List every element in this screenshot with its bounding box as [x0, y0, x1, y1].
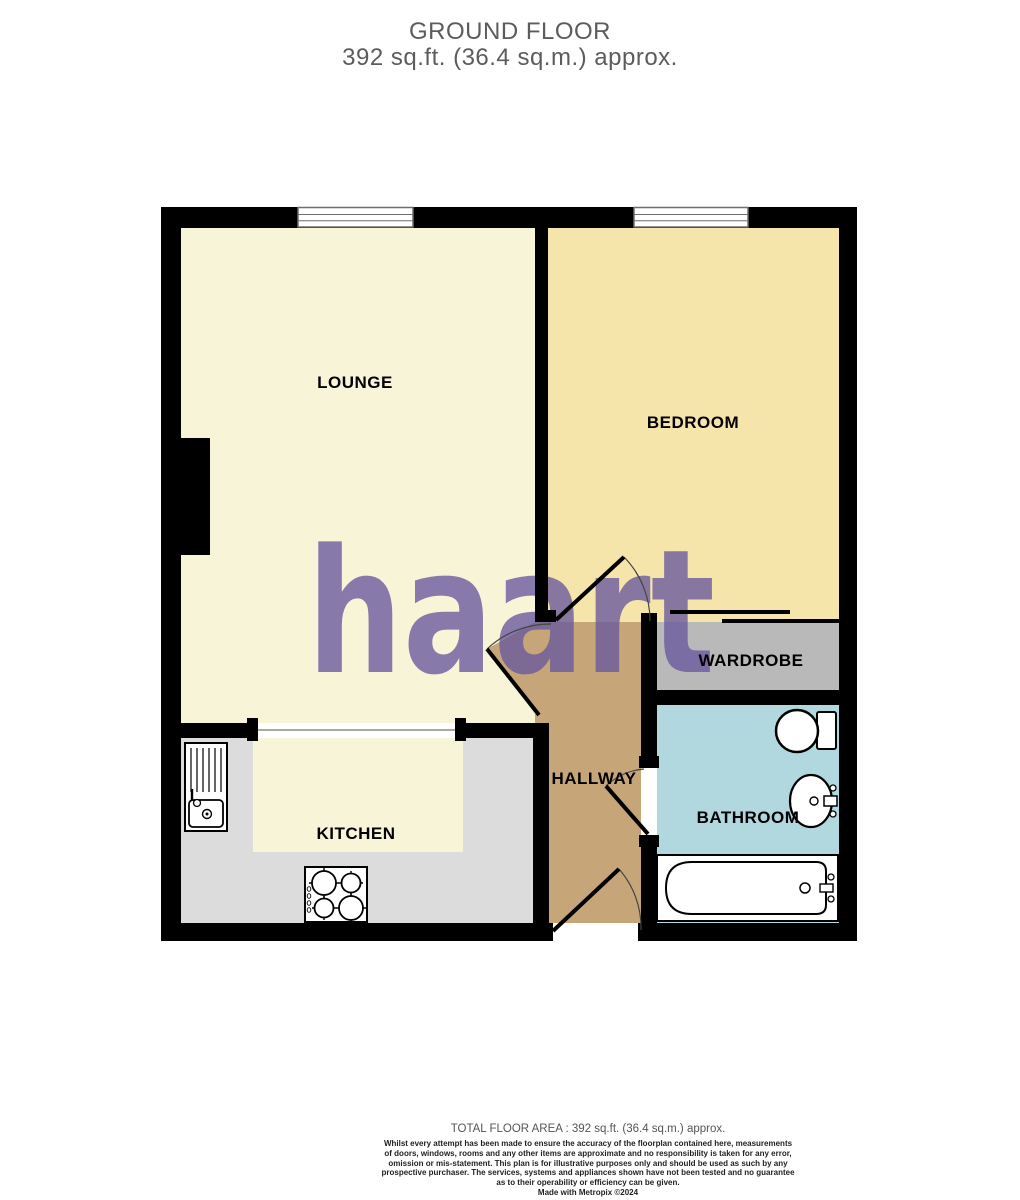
- bedroom-label: BEDROOM: [647, 413, 739, 432]
- basin-knob-bottom: [830, 811, 836, 817]
- toilet-bowl: [776, 710, 818, 752]
- floorplan-drawing: haart: [0, 0, 1020, 1200]
- window-frame: [298, 208, 413, 228]
- basin-tap: [824, 796, 837, 806]
- kitchen-hallway-wall: [533, 723, 549, 923]
- hallway-bathroom-wall: [641, 835, 657, 923]
- wardrobe-sliding-door-outer: [670, 610, 790, 614]
- hallway-label: HALLWAY: [551, 769, 636, 788]
- sink-tap-base: [194, 800, 201, 807]
- bathtub-drain: [800, 883, 810, 893]
- outer-wall-top: [161, 207, 857, 228]
- sink-drain-dot: [206, 813, 209, 816]
- basin-drain: [810, 797, 818, 805]
- bathtub-knob-bottom: [828, 896, 834, 902]
- disclaimer-line: prospective purchaser. The services, sys…: [188, 1168, 988, 1178]
- page: { "title": { "line1": "GROUND FLOOR", "l…: [0, 0, 1020, 1200]
- bathtub-tap: [820, 884, 833, 892]
- opening-cap-left: [247, 718, 258, 741]
- basin-knob-top: [830, 785, 836, 791]
- disclaimer-line: Whilst every attempt has been made to en…: [188, 1139, 988, 1149]
- lounge-kitchen-wall-left: [181, 723, 258, 738]
- chimney-breast: [181, 438, 210, 555]
- kitchen-sink-icon: [185, 743, 227, 831]
- total-floor-area: TOTAL FLOOR AREA : 392 sq.ft. (36.4 sq.m…: [188, 1123, 988, 1135]
- bathtub-icon: [657, 855, 838, 921]
- kitchen-label: KITCHEN: [316, 824, 395, 843]
- bathroom-door-cap-bottom: [639, 835, 659, 847]
- outer-wall-left: [161, 207, 181, 941]
- outer-wall-bottom: [161, 923, 857, 941]
- disclaimer-line: omission or mis-statement. This plan is …: [188, 1159, 988, 1169]
- bathroom-door-cap-top: [639, 756, 659, 768]
- wardrobe-sliding-door-inner: [722, 619, 839, 623]
- entrance-threshold: [553, 923, 638, 941]
- lounge-bedroom-wall-stub: [535, 610, 556, 622]
- lounge-bedroom-wall: [535, 228, 548, 613]
- metropix-credit: Made with Metropix ©2024: [188, 1188, 988, 1198]
- outer-wall-right: [839, 207, 857, 941]
- wardrobe-label: WARDROBE: [698, 651, 803, 670]
- window-frame: [634, 208, 748, 228]
- window-bedroom-icon: [634, 208, 748, 228]
- hob-icon: [305, 867, 367, 922]
- lounge-label: LOUNGE: [317, 373, 393, 392]
- bathroom-label: BATHROOM: [697, 808, 800, 827]
- opening-cap-right: [455, 718, 466, 741]
- wardrobe-bathroom-wall: [641, 690, 839, 705]
- toilet-cistern: [817, 712, 836, 749]
- plan-footer: TOTAL FLOOR AREA : 392 sq.ft. (36.4 sq.m…: [188, 1123, 988, 1198]
- bathtub-knob-top: [828, 874, 834, 880]
- disclaimer-line: of doors, windows, rooms and any other i…: [188, 1149, 988, 1159]
- toilet-icon: [776, 710, 836, 752]
- disclaimer-line: as to their operability or efficiency ca…: [188, 1178, 988, 1188]
- window-lounge-icon: [298, 208, 413, 228]
